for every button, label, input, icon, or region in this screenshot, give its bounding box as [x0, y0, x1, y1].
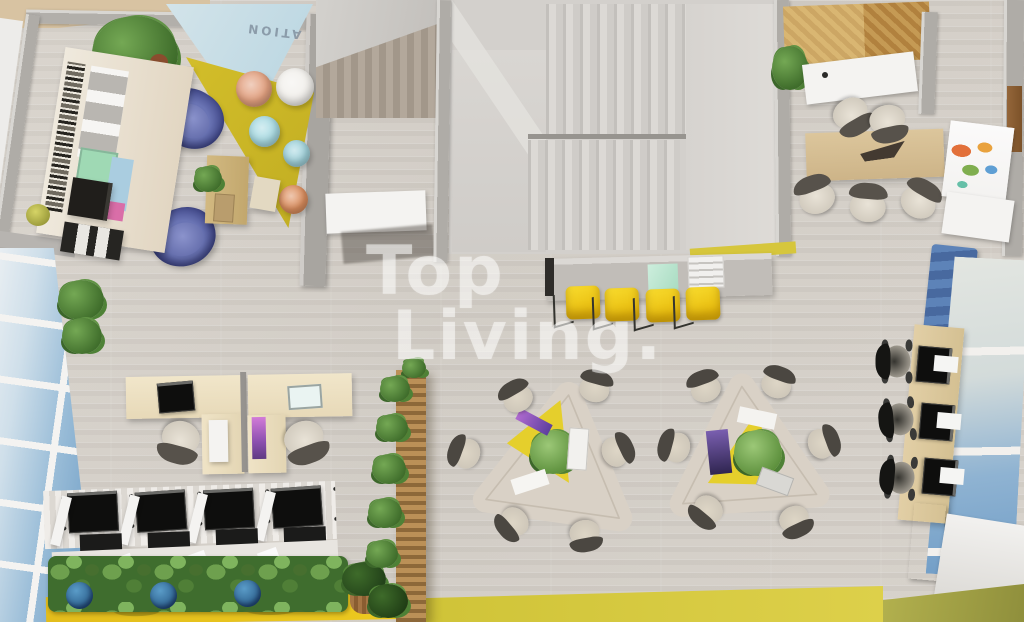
windowsill-plant [58, 280, 104, 320]
partition-plant [368, 498, 402, 528]
coffee-table-magazine [213, 193, 235, 222]
office-chair-black [878, 456, 918, 499]
wood-slat-partition [396, 370, 426, 622]
desk-b-screen-pink [252, 417, 267, 459]
planter-pot-blue [66, 582, 93, 609]
planter-pot-blue [150, 582, 177, 609]
pouf-white [276, 68, 314, 106]
meeting-chair [843, 181, 891, 226]
coffee-machine [67, 177, 112, 221]
watermark-line-1: Top [366, 240, 712, 305]
carrel-monitor [203, 488, 255, 531]
carrel-monitor [271, 485, 324, 528]
lounge-side-table [249, 176, 280, 212]
planter-box [48, 556, 348, 612]
meeting-wall-stub [918, 12, 938, 114]
watermark-line-2: Living. [392, 305, 712, 370]
coffee-table-plant [194, 166, 222, 192]
stair-landing-right [686, 4, 776, 250]
wall-artwork-abstract [942, 120, 1015, 203]
pouf-light-blue [249, 116, 280, 147]
desk-paper [936, 412, 961, 430]
office-chair-black [877, 398, 917, 441]
pouf-orange [279, 185, 308, 214]
collab-table-2-laptop-dark [706, 429, 732, 475]
yellow-floor-center [405, 586, 883, 622]
desk-a-chair [151, 413, 209, 470]
partition-plant [366, 540, 398, 568]
meeting-chair [890, 170, 949, 228]
carrel-monitor [135, 489, 188, 532]
stair-flight-lower [528, 140, 680, 250]
desk-a-pc-tower [209, 420, 229, 462]
office-floorplan-render: ATION [0, 0, 1024, 622]
carrel-monitor [67, 491, 119, 534]
partition-plant [376, 414, 408, 442]
watermark: Top Living. [352, 240, 712, 390]
collab-chair [563, 515, 606, 555]
partition-plant [372, 454, 406, 484]
bowl-plant [26, 204, 50, 226]
pouf-salmon [236, 71, 272, 107]
office-chair-black [876, 342, 913, 382]
stair-mid-divider [528, 134, 686, 139]
windowsill-plant [62, 318, 102, 354]
desk-a-monitor [157, 380, 195, 413]
desk-b-monitor-white [287, 384, 323, 410]
desk-paper [939, 467, 964, 485]
planter-pot-blue [234, 580, 261, 607]
meeting-credenza [941, 191, 1014, 242]
desk-paper [933, 355, 958, 373]
partition-plant-dark [368, 584, 408, 618]
pouf-light-blue [283, 140, 310, 167]
collab-table-2-plant [734, 430, 782, 476]
collab-table-1-laptop-white [567, 427, 590, 470]
stair-flight-upper [546, 4, 686, 136]
sideboard-handle [822, 72, 828, 78]
